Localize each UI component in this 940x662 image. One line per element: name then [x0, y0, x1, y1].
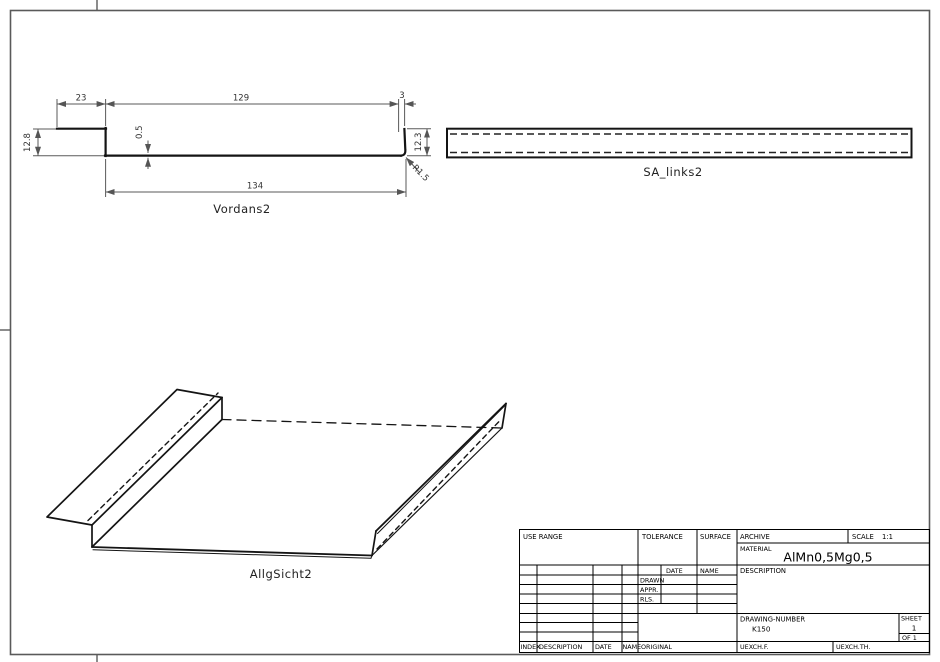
cad-drawing-canvas: 23 129 3 12.8 0.5 12.3 R1.5 134 Vordans2…: [0, 0, 940, 662]
dim-left-height: 12.8: [23, 133, 33, 152]
dim-top-left: 23: [76, 94, 87, 104]
sheet-label: SHEET: [901, 615, 922, 623]
title-block-grid: [520, 530, 930, 653]
rls-label: RLS.: [640, 596, 654, 604]
rev-name-label: NAME: [623, 643, 642, 651]
original-label: ORIGINAL: [641, 643, 672, 651]
dim-bottom-width: 134: [247, 182, 263, 192]
title-block: USE RANGE TOLERANCE SURFACE ARCHIVE SCAL…: [520, 530, 930, 653]
scale-value: 1:1: [882, 533, 893, 541]
surface-label: SURFACE: [700, 533, 731, 541]
side-view-bend-lines: [450, 134, 908, 153]
material-label: MATERIAL: [740, 545, 772, 553]
sheet-value: 1: [912, 624, 917, 633]
front-view-profile: [57, 128, 405, 156]
drawing-sheet: 23 129 3 12.8 0.5 12.3 R1.5 134 Vordans2…: [0, 0, 940, 662]
scale-label: SCALE: [852, 533, 874, 541]
uexchth-label: UEXCH.TH.: [836, 643, 870, 651]
rev-date-label: DATE: [595, 643, 612, 651]
dim-top-right: 3: [399, 91, 404, 101]
drawing-number-label: DRAWING-NUMBER: [740, 616, 805, 624]
side-view: SA_links2: [447, 129, 912, 179]
approval-name-header: NAME: [700, 567, 719, 575]
approval-date-header: DATE: [666, 567, 683, 575]
iso-view-label: AllgSicht2: [250, 567, 313, 581]
dim-top-mid: 129: [233, 94, 249, 104]
dim-radius: R1.5: [410, 163, 431, 184]
side-view-label: SA_links2: [643, 165, 702, 179]
dim-thickness: 0.5: [135, 125, 145, 139]
drawn-label: DRAWN: [640, 577, 664, 585]
dim-right-height: 12.3: [414, 133, 424, 152]
iso-view: AllgSicht2: [47, 390, 506, 582]
description-label: DESCRIPTION: [740, 567, 786, 575]
uexchf-label: UEXCH.F.: [740, 643, 769, 651]
front-view-label: Vordans2: [213, 202, 270, 216]
front-view-dimensions: [33, 99, 431, 197]
drawing-number-value: K150: [752, 625, 771, 634]
tolerance-label: TOLERANCE: [641, 533, 683, 541]
iso-view-part: [47, 390, 506, 559]
archive-label: ARCHIVE: [740, 533, 770, 541]
rev-description-label: DESCRIPTION: [539, 643, 582, 651]
material-value: AlMn0,5Mg0,5: [783, 550, 872, 565]
appr-label: APPR.: [640, 586, 658, 594]
front-view: 23 129 3 12.8 0.5 12.3 R1.5 134 Vordans2: [23, 91, 431, 216]
use-range-label: USE RANGE: [523, 533, 563, 541]
sheet-of: OF 1: [902, 634, 917, 642]
